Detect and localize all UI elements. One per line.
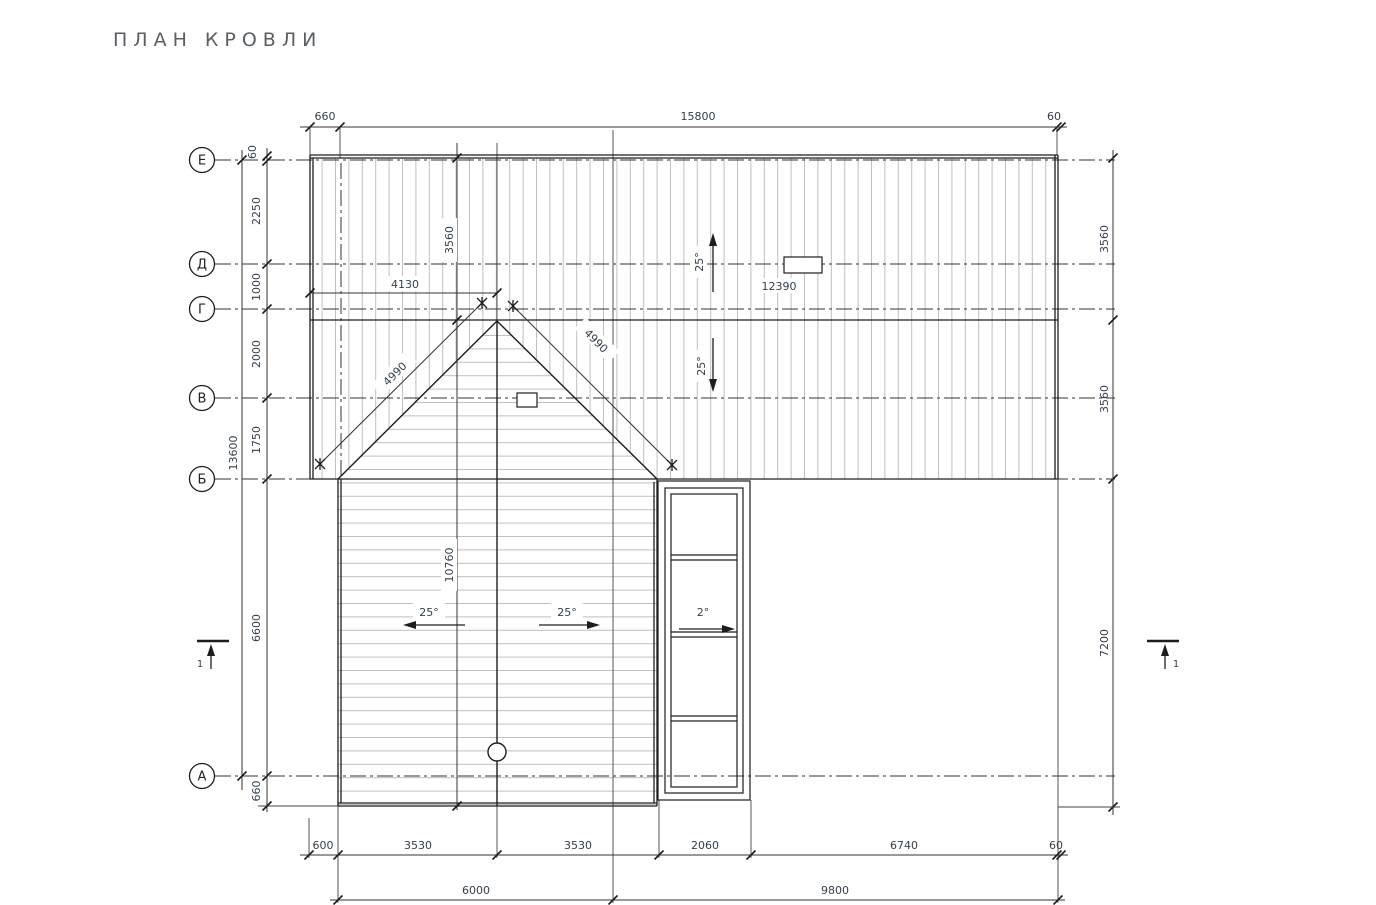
axis-label-g: Г [198, 303, 206, 318]
bay-roof-fill [658, 481, 750, 800]
slope-label-lower-left: 25° [419, 606, 439, 619]
roof-hatch-opening-upper [784, 257, 822, 273]
dim-left-total: 13600 [227, 436, 240, 471]
dim-left-d-g: 1000 [250, 273, 263, 301]
dim-bottom-left-slope: 3530 [404, 839, 432, 852]
drawing-title: ПЛАН КРОВЛИ [113, 29, 322, 51]
dim-left-b-a: 6600 [250, 614, 263, 642]
roof-hatch-opening-gable [517, 393, 537, 407]
dim-inner-north-slope: 3560 [443, 226, 456, 254]
dim-left-e-d: 2250 [250, 197, 263, 225]
dim-bottom-total-left: 6000 [462, 884, 490, 897]
dim-inner-ridge: 10760 [443, 548, 456, 583]
dim-right-south: 7200 [1098, 629, 1111, 657]
dim-left-eave: 60 [246, 145, 259, 159]
roof-plane-fills [310, 158, 1058, 806]
dim-bottom-bay: 2060 [691, 839, 719, 852]
section-mark-left: 1 [197, 641, 229, 670]
dim-gable-width: 4130 [391, 278, 419, 291]
slope-label-bay: 2° [697, 606, 710, 619]
axis-label-v: В [198, 392, 207, 407]
axis-label-a: А [198, 770, 207, 785]
dim-right-lower: 3560 [1098, 385, 1111, 413]
axis-label-d: Д [197, 258, 207, 273]
dim-top-offset-left: 660 [315, 110, 336, 123]
axis-bubbles: Е Д Г В Б А [190, 148, 215, 789]
slope-label-lower-right: 25° [557, 606, 577, 619]
slope-label-main-down: 25° [695, 356, 708, 376]
dim-bottom-total-right: 9800 [821, 884, 849, 897]
dim-bottom-right-slope: 3530 [564, 839, 592, 852]
section-number-right: 1 [1173, 659, 1179, 670]
section-number-left: 1 [197, 659, 203, 670]
dim-right-upper: 3560 [1098, 225, 1111, 253]
dim-top-main: 15800 [681, 110, 716, 123]
section-mark-right: 1 [1147, 641, 1179, 670]
dim-left-g-v: 2000 [250, 340, 263, 368]
dim-left-a-eave: 660 [250, 781, 263, 802]
dim-bottom-eave: 600 [313, 839, 334, 852]
dim-main-ridge: 12390 [762, 280, 797, 293]
dim-bottom-offset-right: 60 [1049, 839, 1063, 852]
axis-label-b: Б [198, 473, 207, 488]
axis-label-e: Е [198, 154, 206, 169]
roof-plan-page: 660 15800 60 600 3530 3530 2060 6740 60 … [0, 0, 1376, 905]
roof-plan-drawing: 660 15800 60 600 3530 3530 2060 6740 60 … [0, 0, 1376, 905]
dim-bottom-right-part: 6740 [890, 839, 918, 852]
chimney-pipe-circle [488, 743, 506, 761]
dim-top-offset-right: 60 [1047, 110, 1061, 123]
slope-label-main-up: 25° [693, 252, 706, 272]
dim-left-v-b: 1750 [250, 426, 263, 454]
